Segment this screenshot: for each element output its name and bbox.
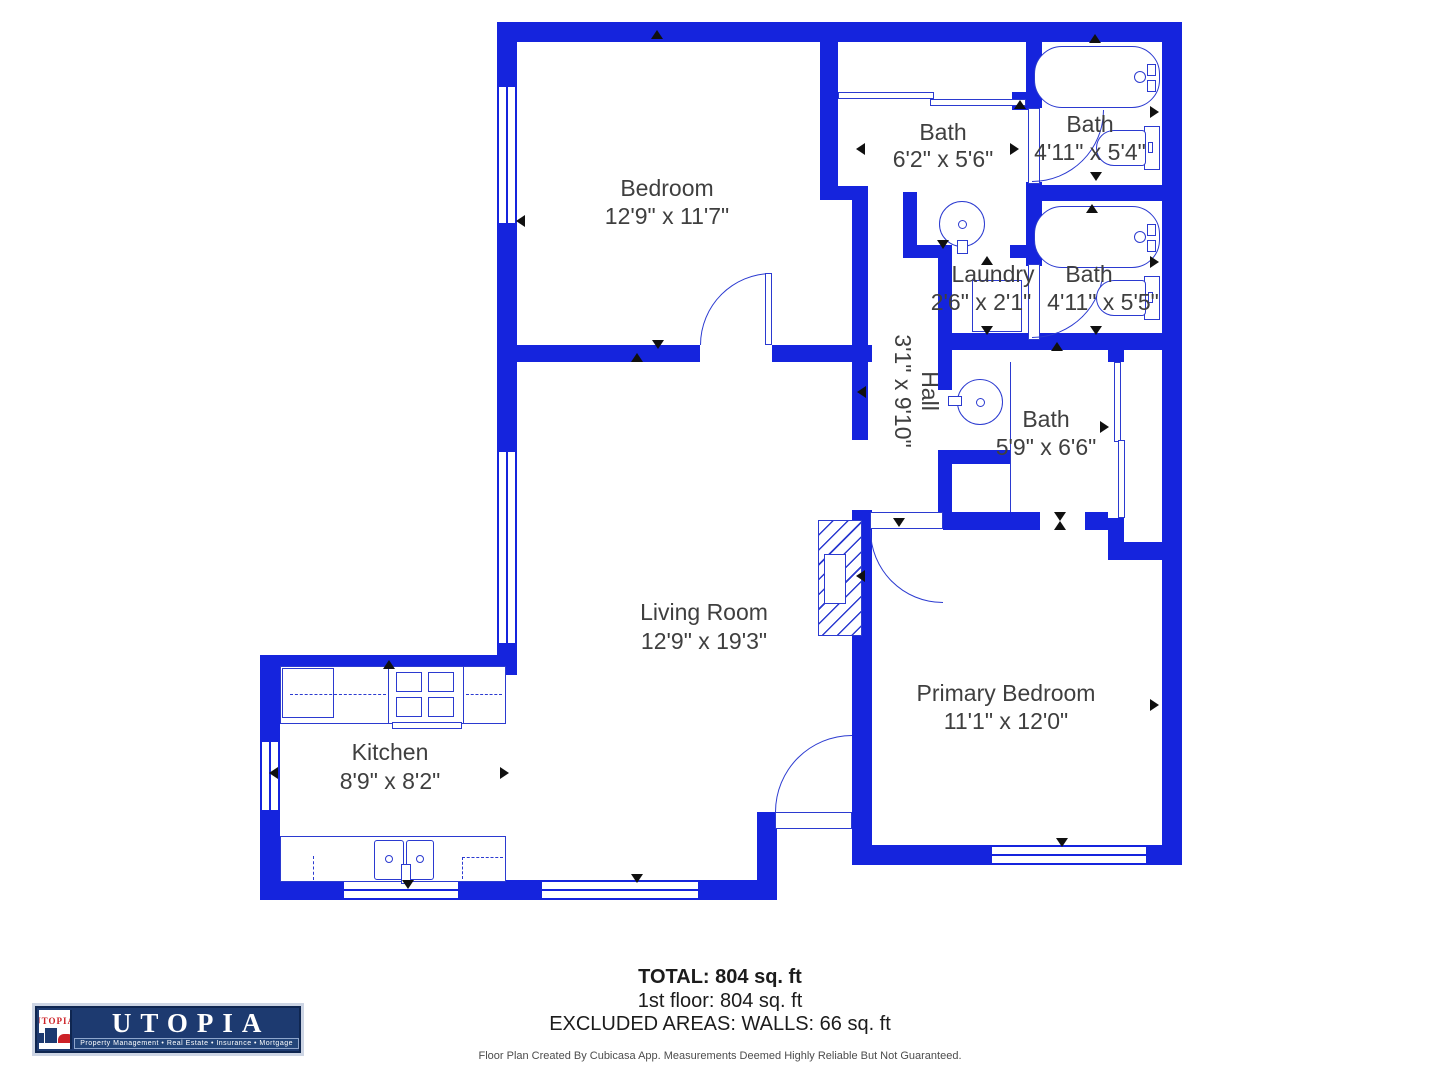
stove-burner-icon-3	[396, 697, 422, 717]
kitchen-sink-drain-right	[416, 855, 424, 863]
measure-arrow	[1086, 204, 1098, 213]
room-label-bath-right2: Bath	[1065, 260, 1112, 288]
measure-arrow	[937, 240, 949, 249]
measure-arrow	[1054, 512, 1066, 521]
total-area-text: TOTAL: 804 sq. ft	[0, 964, 1440, 990]
stove-burner-icon-1	[396, 672, 422, 692]
measure-arrow	[631, 874, 643, 883]
fireplace-inner-box	[824, 554, 846, 604]
measure-arrow	[1150, 106, 1159, 118]
door-arc-bedroom	[700, 273, 772, 345]
stove-burner-icon-4	[428, 697, 454, 717]
wall-alcove-stub	[903, 192, 917, 258]
bathtub-faucet-icon-mid2	[1147, 240, 1156, 252]
measure-arrow	[1054, 521, 1066, 530]
room-dims-bath-mid: 5'9" x 6'6"	[996, 433, 1097, 461]
toilet-button-icon-top	[1148, 142, 1153, 153]
measure-arrow	[516, 215, 525, 227]
measure-arrow	[652, 340, 664, 349]
room-dims-primary: 11'1" x 12'0"	[944, 707, 1068, 735]
room-dims-kitchen: 8'9" x 8'2"	[340, 767, 441, 795]
measure-arrow	[981, 326, 993, 335]
wall-closet-right-bottom	[1108, 542, 1182, 560]
wall-hall-left	[852, 200, 868, 440]
window-living-left	[497, 450, 517, 645]
sink-tap-icon-alcove	[957, 240, 968, 254]
measure-arrow	[1100, 421, 1109, 433]
room-dims-bath-topright: 4'11" x 5'4"	[1034, 138, 1146, 166]
wall-entry-step	[757, 812, 777, 900]
bathtub-faucet-icon-top2	[1147, 80, 1156, 92]
hall-name: Hall	[916, 311, 943, 471]
sliding-door-closet-panel2	[930, 99, 1026, 106]
oven-front-line	[392, 722, 462, 729]
room-label-kitchen: Kitchen	[352, 738, 429, 766]
stove-burner-icon-2	[428, 672, 454, 692]
measure-arrow	[857, 386, 866, 398]
room-label-hall: Hall 3'1" x 9'10"	[887, 311, 943, 471]
hall-dims: 3'1" x 9'10"	[889, 311, 916, 471]
sliding-door-rightcloset-panel1	[1114, 362, 1121, 442]
wall-bath-mid-bottom-right	[1085, 512, 1108, 530]
window-living-bottom	[540, 880, 700, 900]
utopia-logo-right: UTOPIA Property Management • Real Estate…	[74, 1008, 299, 1051]
window-primary-bottom	[990, 845, 1148, 865]
window-bedroom-left	[497, 85, 517, 225]
utopia-logo-mark: UTOPIA	[39, 1010, 72, 1049]
door-arc-primary	[870, 530, 943, 603]
bathtub-faucet-icon-top	[1147, 64, 1156, 76]
measure-arrow	[1010, 143, 1019, 155]
room-label-bedroom: Bedroom	[620, 174, 713, 202]
kitchen-sink-drain-left	[385, 855, 393, 863]
wall-exterior-top	[497, 22, 1182, 42]
measure-arrow	[269, 767, 278, 779]
room-label-living: Living Room	[640, 598, 768, 626]
room-dims-bath-top: 6'2" x 5'6"	[893, 145, 994, 173]
measure-arrow	[402, 880, 414, 889]
measure-arrow	[856, 143, 865, 155]
bathtub-knob-icon-top	[1134, 71, 1146, 83]
bathtub-faucet-icon-mid	[1147, 224, 1156, 236]
sink-drain-icon-bath-mid	[976, 398, 985, 407]
measure-arrow	[1150, 699, 1159, 711]
floor-plan-canvas: Bedroom 12'9" x 11'7" Bath 6'2" x 5'6" B…	[0, 0, 1440, 1080]
wall-exterior-right	[1162, 22, 1182, 865]
room-dims-laundry: 2'6" x 2'1"	[931, 288, 1032, 316]
upper-cabinet-dashed-right	[466, 694, 502, 695]
utopia-logo: UTOPIA UTOPIA Property Management • Real…	[35, 1006, 301, 1053]
measure-arrow	[1051, 342, 1063, 351]
door-leaf-entry	[775, 812, 852, 829]
cabinet-dashed-vert-left	[313, 856, 314, 880]
wall-bath-mid-bottom-left	[943, 512, 1040, 530]
door-leaf-primary	[870, 512, 943, 529]
utopia-brand-text: UTOPIA	[103, 1010, 271, 1037]
door-arc-entry	[775, 735, 852, 812]
measure-arrow	[500, 767, 509, 779]
upper-cabinet-dashed-left	[290, 694, 386, 695]
measure-arrow	[1090, 172, 1102, 181]
sink-drain-icon-alcove	[958, 220, 967, 229]
cabinet-dashed-bottom-right	[462, 857, 503, 858]
room-dims-bath-right2: 4'11" x 5'5"	[1047, 288, 1159, 316]
measure-arrow	[1056, 838, 1068, 847]
room-label-bath-top: Bath	[919, 118, 966, 146]
sliding-door-rightcloset-panel2	[1118, 440, 1125, 518]
wall-closet-right-top-stub	[1108, 340, 1124, 362]
wall-bath-top-connector	[820, 186, 868, 200]
measure-arrow	[1089, 34, 1101, 43]
utopia-logo-houses-icon	[39, 1027, 72, 1043]
room-label-bath-mid: Bath	[1022, 405, 1069, 433]
fridge-icon	[282, 668, 334, 718]
bathtub-knob-icon-mid	[1134, 231, 1146, 243]
cabinet-dashed-vert-right	[462, 857, 463, 879]
measure-arrow	[383, 660, 395, 669]
utopia-tagline-text: Property Management • Real Estate • Insu…	[74, 1038, 299, 1049]
measure-arrow	[893, 518, 905, 527]
room-dims-living: 12'9" x 19'3"	[641, 627, 767, 655]
wall-bath-top-left	[820, 92, 838, 200]
room-label-laundry: Laundry	[951, 260, 1034, 288]
measure-arrow	[631, 353, 643, 362]
measure-arrow	[1014, 100, 1026, 109]
measure-arrow	[856, 570, 865, 582]
wall-baths-right-divider	[1026, 185, 1162, 201]
wall-bedroom-living-left	[497, 345, 700, 362]
sliding-door-closet-panel1	[838, 92, 934, 99]
measure-arrow	[1090, 326, 1102, 335]
sink-tap-icon-bath-mid	[948, 396, 962, 406]
room-label-bath-topright: Bath	[1066, 110, 1113, 138]
room-label-primary: Primary Bedroom	[917, 679, 1096, 707]
measure-arrow	[651, 30, 663, 39]
door-leaf-bedroom	[765, 273, 772, 345]
room-dims-bedroom: 12'9" x 11'7"	[605, 202, 729, 230]
measure-arrow	[1150, 256, 1159, 268]
utopia-logo-mark-text: UTOPIA	[39, 1016, 72, 1026]
